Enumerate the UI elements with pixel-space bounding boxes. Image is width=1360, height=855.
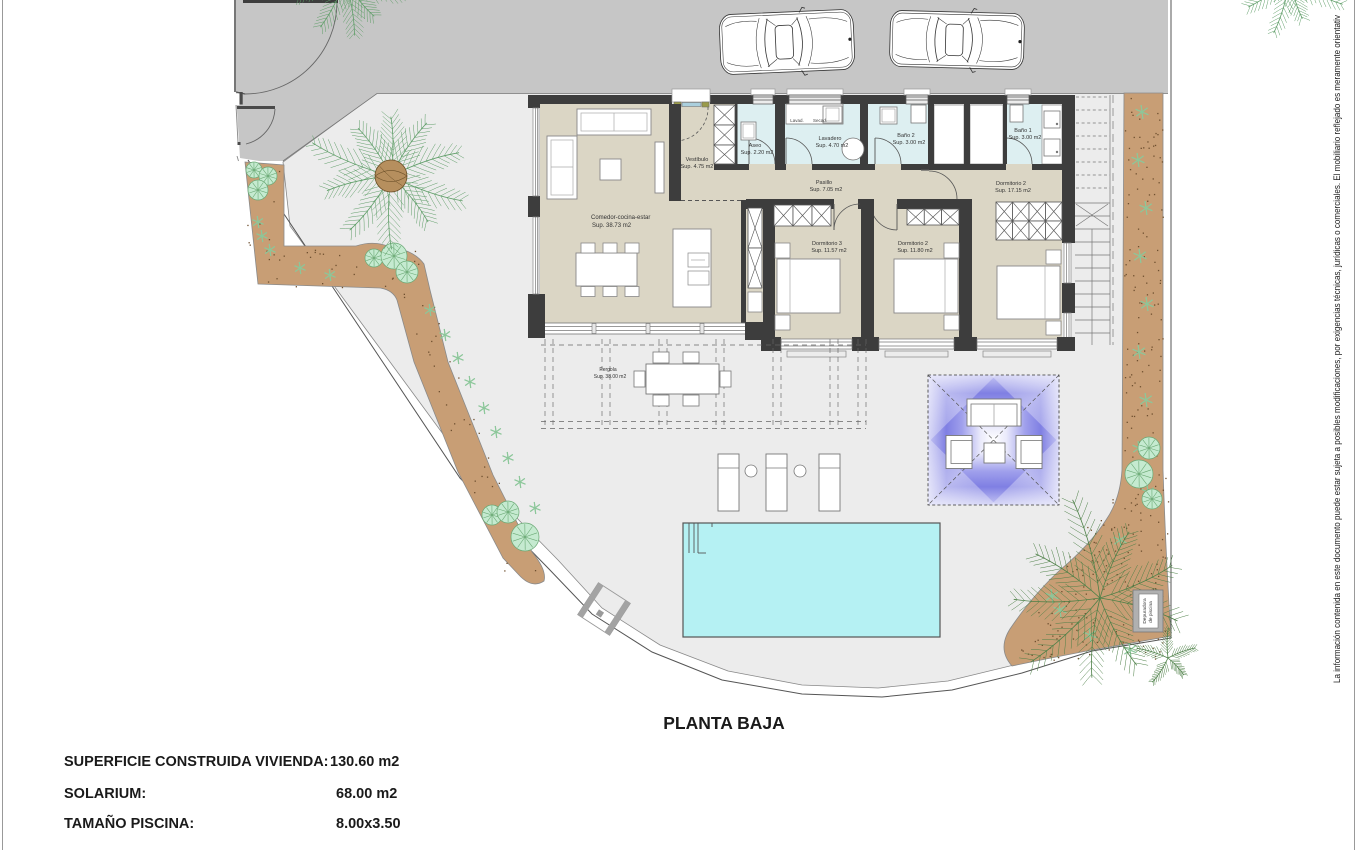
svg-text:Sup. 11.80 m2: Sup. 11.80 m2 xyxy=(897,248,932,254)
svg-text:SUPERFICIE CONSTRUIDA VIVIENDA: SUPERFICIE CONSTRUIDA VIVIENDA: xyxy=(64,754,329,770)
svg-text:de piscina: de piscina xyxy=(1148,601,1154,623)
svg-text:Sup. 3.00 m2: Sup. 3.00 m2 xyxy=(893,140,926,146)
svg-text:Dormitorio 2: Dormitorio 2 xyxy=(996,181,1026,187)
svg-text:Sup. 17.15 m2: Sup. 17.15 m2 xyxy=(995,188,1031,194)
svg-text:Sup. 38.73 m2: Sup. 38.73 m2 xyxy=(592,223,632,229)
svg-text:Pergola: Pergola xyxy=(599,367,616,373)
svg-text:PLANTA BAJA: PLANTA BAJA xyxy=(663,713,785,733)
svg-text:Baño 1: Baño 1 xyxy=(1014,128,1031,134)
svg-text:Sup. 4.70 m2: Sup. 4.70 m2 xyxy=(816,143,849,149)
svg-text:Dormitorio 3: Dormitorio 3 xyxy=(812,241,842,247)
svg-text:Sup. 38.00 m2: Sup. 38.00 m2 xyxy=(594,374,627,380)
svg-text:Pasillo: Pasillo xyxy=(816,180,832,186)
svg-text:Sup. 11.57 m2: Sup. 11.57 m2 xyxy=(811,248,846,254)
svg-text:TAMAÑO PISCINA:: TAMAÑO PISCINA: xyxy=(64,814,194,832)
svg-text:Baño 2: Baño 2 xyxy=(897,133,914,139)
svg-text:Sup. 4.75 m2: Sup. 4.75 m2 xyxy=(681,164,714,170)
svg-text:SOLARIUM:: SOLARIUM: xyxy=(64,786,146,802)
svg-text:Sup. 7.05 m2: Sup. 7.05 m2 xyxy=(810,187,843,193)
svg-text:La información contenida en es: La información contenida en este documen… xyxy=(1332,15,1342,683)
svg-text:130.60 m2: 130.60 m2 xyxy=(330,754,399,770)
svg-text:Comedor-cocina-estar: Comedor-cocina-estar xyxy=(591,215,650,221)
svg-text:Vestíbulo: Vestíbulo xyxy=(686,157,709,163)
svg-text:Lavad.: Lavad. xyxy=(790,118,804,123)
svg-text:Aseo: Aseo xyxy=(749,143,762,149)
svg-text:68.00 m2: 68.00 m2 xyxy=(336,786,397,802)
svg-text:Sup. 3.00 m2: Sup. 3.00 m2 xyxy=(1009,135,1042,141)
svg-text:8.00x3.50: 8.00x3.50 xyxy=(336,816,401,832)
svg-text:Depuradora: Depuradora xyxy=(1142,598,1148,624)
svg-text:Sup. 2.20 m2: Sup. 2.20 m2 xyxy=(741,150,774,156)
svg-text:Lavadero: Lavadero xyxy=(819,136,842,142)
svg-text:Secad.: Secad. xyxy=(813,118,827,123)
svg-text:Dormitorio 2: Dormitorio 2 xyxy=(898,241,928,247)
